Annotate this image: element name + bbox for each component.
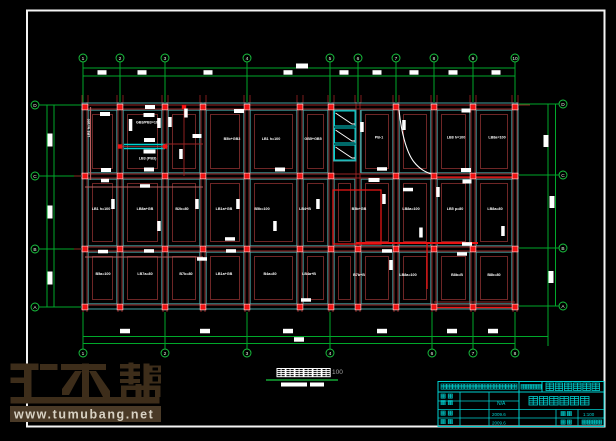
svg-text:LB8a=100: LB8a=100 — [399, 273, 416, 277]
svg-text:6: 6 — [431, 351, 434, 357]
svg-text:4: 4 — [246, 56, 249, 62]
svg-text:8: 8 — [514, 351, 517, 357]
svg-text:N/A: N/A — [497, 401, 506, 407]
svg-text:9: 9 — [472, 56, 475, 62]
svg-text:B8b=B: B8b=B — [451, 273, 463, 277]
svg-text:10: 10 — [512, 56, 518, 62]
svg-text:B5b+GB: B5b+GB — [352, 207, 367, 211]
svg-text:B: B — [561, 246, 564, 252]
svg-text:2: 2 — [164, 351, 167, 357]
svg-text:LB8a+GB: LB8a+GB — [137, 207, 154, 211]
svg-text:1:100: 1:100 — [583, 412, 595, 417]
svg-text:C: C — [33, 174, 37, 180]
svg-text:1: 1 — [82, 351, 85, 357]
svg-text:D: D — [33, 103, 37, 109]
svg-text:LB7a=80: LB7a=80 — [137, 272, 152, 276]
svg-text:GB3/PB3=100: GB3/PB3=100 — [136, 121, 160, 125]
svg-text:LB8 h=100: LB8 h=100 — [447, 136, 466, 140]
svg-text:LB1 h=100: LB1 h=100 — [92, 207, 111, 211]
svg-text:7: 7 — [472, 351, 475, 357]
svg-text:5: 5 — [329, 56, 332, 62]
svg-text:B5b=100: B5b=100 — [254, 207, 269, 211]
svg-text:PB-1: PB-1 — [375, 136, 383, 140]
svg-text:2009.6: 2009.6 — [492, 421, 506, 426]
svg-text:LB1 h=100: LB1 h=100 — [262, 137, 281, 141]
svg-text:3: 3 — [246, 351, 249, 357]
svg-text:LB4a+B: LB4a+B — [302, 272, 316, 276]
svg-text:LB8a=100: LB8a=100 — [488, 136, 505, 140]
svg-text:LB8a=80: LB8a=80 — [487, 207, 502, 211]
svg-text:2009.6: 2009.6 — [492, 412, 506, 417]
svg-text:8: 8 — [433, 56, 436, 62]
svg-text:B: B — [33, 247, 36, 253]
svg-text:B8b=80: B8b=80 — [487, 273, 500, 277]
svg-text:C: C — [561, 173, 565, 179]
svg-text:B7b=80: B7b=80 — [179, 272, 192, 276]
svg-text:GB5+GB5: GB5+GB5 — [304, 137, 321, 141]
svg-text:www.tumubang.net: www.tumubang.net — [13, 408, 154, 422]
svg-text:B7b+B: B7b+B — [353, 273, 365, 277]
svg-text:2: 2 — [119, 56, 122, 62]
svg-text:LB5 p=80: LB5 p=80 — [447, 207, 464, 211]
svg-text:LB8a=100: LB8a=100 — [402, 207, 419, 211]
svg-text:B2b=80: B2b=80 — [175, 207, 188, 211]
svg-text:B5b+GB3: B5b+GB3 — [224, 137, 241, 141]
svg-text:LB1a+GB: LB1a+GB — [216, 272, 233, 276]
svg-text:100: 100 — [332, 369, 343, 376]
svg-text:D: D — [561, 102, 565, 108]
svg-text:6: 6 — [357, 56, 360, 62]
svg-text:LB4+B: LB4+B — [299, 207, 311, 211]
svg-text:B4a=80: B4a=80 — [263, 272, 276, 276]
svg-text:LB1a+GB: LB1a+GB — [216, 207, 233, 211]
svg-text:LB3 (PB3): LB3 (PB3) — [139, 157, 157, 161]
svg-text:4: 4 — [329, 351, 332, 357]
svg-text:3: 3 — [164, 56, 167, 62]
svg-text:7: 7 — [395, 56, 398, 62]
svg-text:B5a=100: B5a=100 — [95, 272, 110, 276]
svg-text:1: 1 — [82, 56, 85, 62]
